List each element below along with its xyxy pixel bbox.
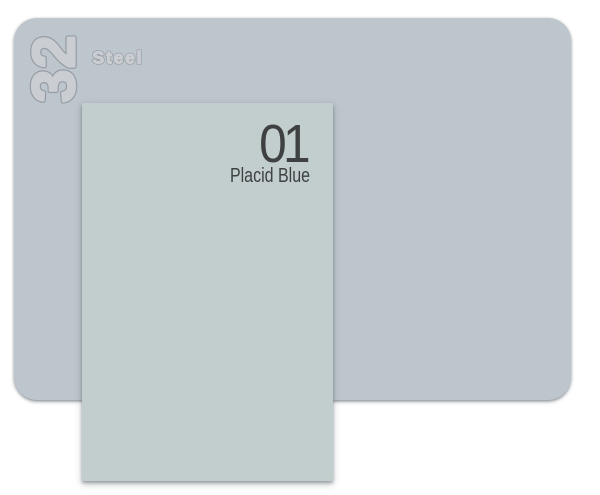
svg-text:Steel: Steel [93, 47, 144, 67]
svg-text:32: 32 [21, 35, 88, 103]
